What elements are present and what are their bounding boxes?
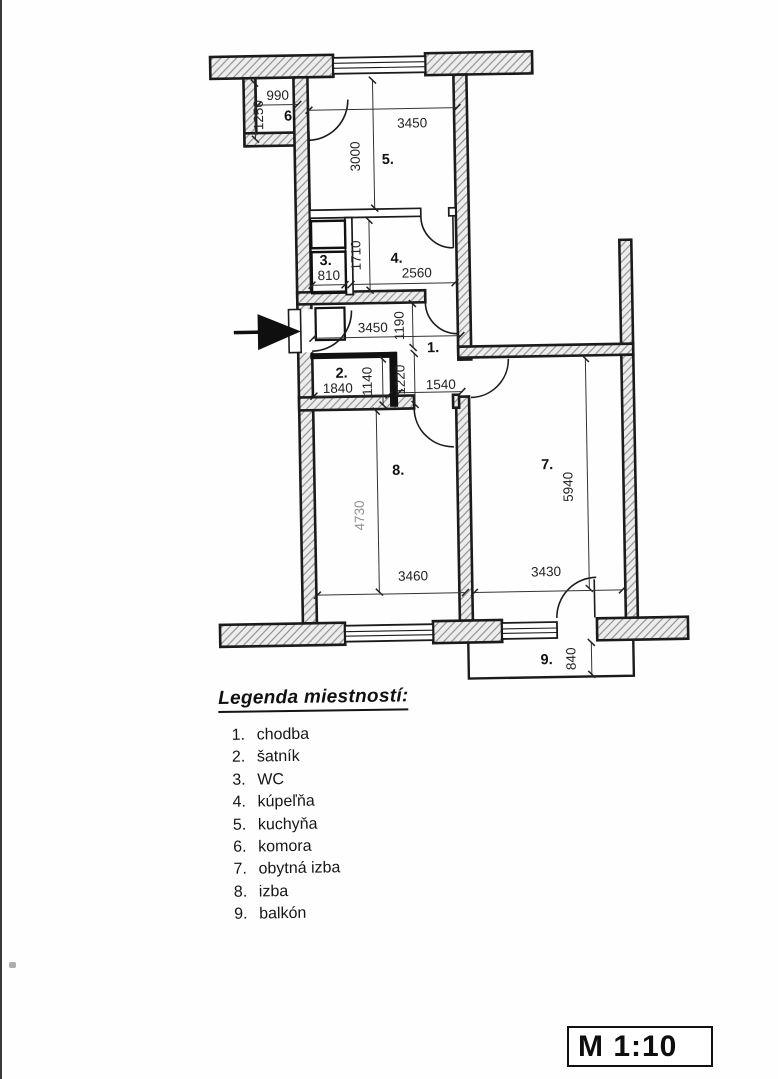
legend-item-pantry: 6.komora <box>233 834 411 859</box>
exterior-walls <box>210 49 688 647</box>
door-leaf-balcony <box>594 579 595 617</box>
dim-room6-height: 1250 <box>251 100 267 130</box>
dimline-balcony-depth <box>591 642 592 674</box>
scale-label: M 1:10 <box>578 1030 677 1064</box>
wc-upper-box <box>311 221 345 249</box>
wall-kitchen-bottom-left <box>310 208 421 218</box>
dimline-room4-width <box>351 283 455 285</box>
room-label-balcony: 9. <box>540 652 552 668</box>
dim-room7-width: 3430 <box>531 564 561 580</box>
legend-item-bathroom: 4.kúpeľňa <box>232 790 410 815</box>
dimline-room8-width <box>317 593 465 596</box>
legend-name: chodba <box>257 724 310 747</box>
legend-name: kuchyňa <box>258 813 318 836</box>
legend-num: 5. <box>233 814 258 837</box>
door-arc-bathroom-top <box>421 216 454 249</box>
door-arc-balcony <box>556 577 597 618</box>
room-label-bathroom: 4. <box>390 251 402 267</box>
legend-num: 4. <box>232 792 257 815</box>
dimline-room34-height <box>369 220 370 290</box>
legend: Legenda miestností: 1.chodba 2.šatník 3.… <box>218 685 412 926</box>
dim-hall-height: 1190 <box>391 311 407 340</box>
room-label-wc: 3. <box>319 253 331 269</box>
door-arc-hall-bathroom <box>425 302 458 335</box>
room-label-livingroom: 7. <box>541 457 553 473</box>
legend-num: 6. <box>233 836 258 859</box>
dim-hall-passage-height: 1220 <box>392 365 408 395</box>
legend-name: obytná izba <box>258 858 340 882</box>
wall-right-stub <box>619 240 633 352</box>
legend-name: šatník <box>257 746 300 769</box>
dim-balcony-depth: 840 <box>563 647 578 670</box>
dim-hall-width: 3450 <box>358 320 388 336</box>
legend-item-room: 8.izba <box>234 879 412 904</box>
legend-items: 1.chodba 2.šatník 3.WC 4.kúpeľňa 5.kuchy… <box>232 722 412 926</box>
dimline-hall-height <box>412 303 413 347</box>
room-label-hall: 1. <box>427 340 439 356</box>
legend-item-hall: 1.chodba <box>232 722 410 747</box>
legend-num: 8. <box>234 881 259 904</box>
legend-item-livingroom: 7.obytná izba <box>233 857 411 882</box>
dim-room6-width: 990 <box>266 88 289 103</box>
door-arc-pantry <box>308 100 349 141</box>
door-arc-livingroom <box>470 359 509 398</box>
door-arc-room8 <box>414 408 454 448</box>
hall-closet-box <box>315 308 345 341</box>
room-label-room8: 8. <box>392 463 404 479</box>
room-label-kitchen: 5. <box>382 152 394 168</box>
legend-item-balcony: 9.balkón <box>234 902 412 927</box>
wall-bottom-middle <box>433 620 502 643</box>
dimline-room5-height <box>372 80 374 208</box>
wall-hall-bottom-right <box>453 395 459 408</box>
legend-item-wardrobe: 2.šatník <box>232 745 410 770</box>
legend-title: Legenda miestností: <box>218 685 409 713</box>
dim-room3-width: 810 <box>317 268 340 283</box>
scale-box: M 1:10 <box>567 1026 713 1067</box>
legend-name: komora <box>258 836 312 859</box>
dim-room7-height: 5940 <box>560 472 576 502</box>
wall-wardrobe-top <box>310 352 396 360</box>
legend-item-wc: 3.WC <box>232 767 410 792</box>
dim-hall-lower-width: 1540 <box>426 377 456 393</box>
wall-livingroom-top <box>458 344 633 358</box>
dim-room5-width: 3450 <box>397 115 427 131</box>
room-label-pantry: 6. <box>284 108 296 124</box>
wall-top-left <box>210 55 333 79</box>
legend-num: 1. <box>232 724 257 747</box>
wall-bottom-left <box>220 623 345 647</box>
window-kitchen <box>333 56 425 74</box>
dim-room34-height: 1710 <box>348 240 364 270</box>
dimline-room5-width <box>309 108 457 111</box>
dim-room4-width: 2560 <box>402 265 432 281</box>
dimline-room8-height <box>376 411 379 592</box>
dim-room5-height: 3000 <box>348 141 364 171</box>
legend-name: WC <box>257 769 284 792</box>
legend-name: izba <box>259 881 289 904</box>
legend-num: 2. <box>232 747 257 770</box>
legend-item-kitchen: 5.kuchyňa <box>233 812 411 837</box>
dim-room8-width: 3460 <box>398 568 428 584</box>
scanned-floorplan-page: 990 1250 3450 3000 1710 810 2560 3450 11… <box>0 0 778 1079</box>
wall-room8-room7-divider <box>456 397 473 621</box>
dimline-room7-height <box>585 358 589 588</box>
dimline-room7-width <box>474 590 622 593</box>
legend-name: balkón <box>259 903 306 926</box>
wall-kitchen-bottom-right <box>449 208 456 216</box>
dim-room2-height: 1140 <box>359 367 375 396</box>
dim-room8-height: 4730 <box>352 500 368 530</box>
door-leaf-bathroom <box>453 216 454 248</box>
window-room8 <box>345 624 433 642</box>
room-label-wardrobe: 2. <box>335 366 347 382</box>
legend-num: 3. <box>232 769 257 792</box>
legend-num: 9. <box>234 904 259 927</box>
wall-right-upper <box>453 74 471 359</box>
window-livingroom <box>502 622 557 639</box>
wall-right-lower <box>621 355 638 618</box>
door-swings <box>308 95 597 622</box>
dim-room2-width: 1840 <box>323 381 353 397</box>
legend-num: 7. <box>233 859 258 882</box>
wall-bottom-right <box>597 617 688 641</box>
legend-name: kúpeľňa <box>257 791 314 814</box>
wall-top-right <box>425 51 532 75</box>
dimline-room3-width <box>312 285 345 286</box>
